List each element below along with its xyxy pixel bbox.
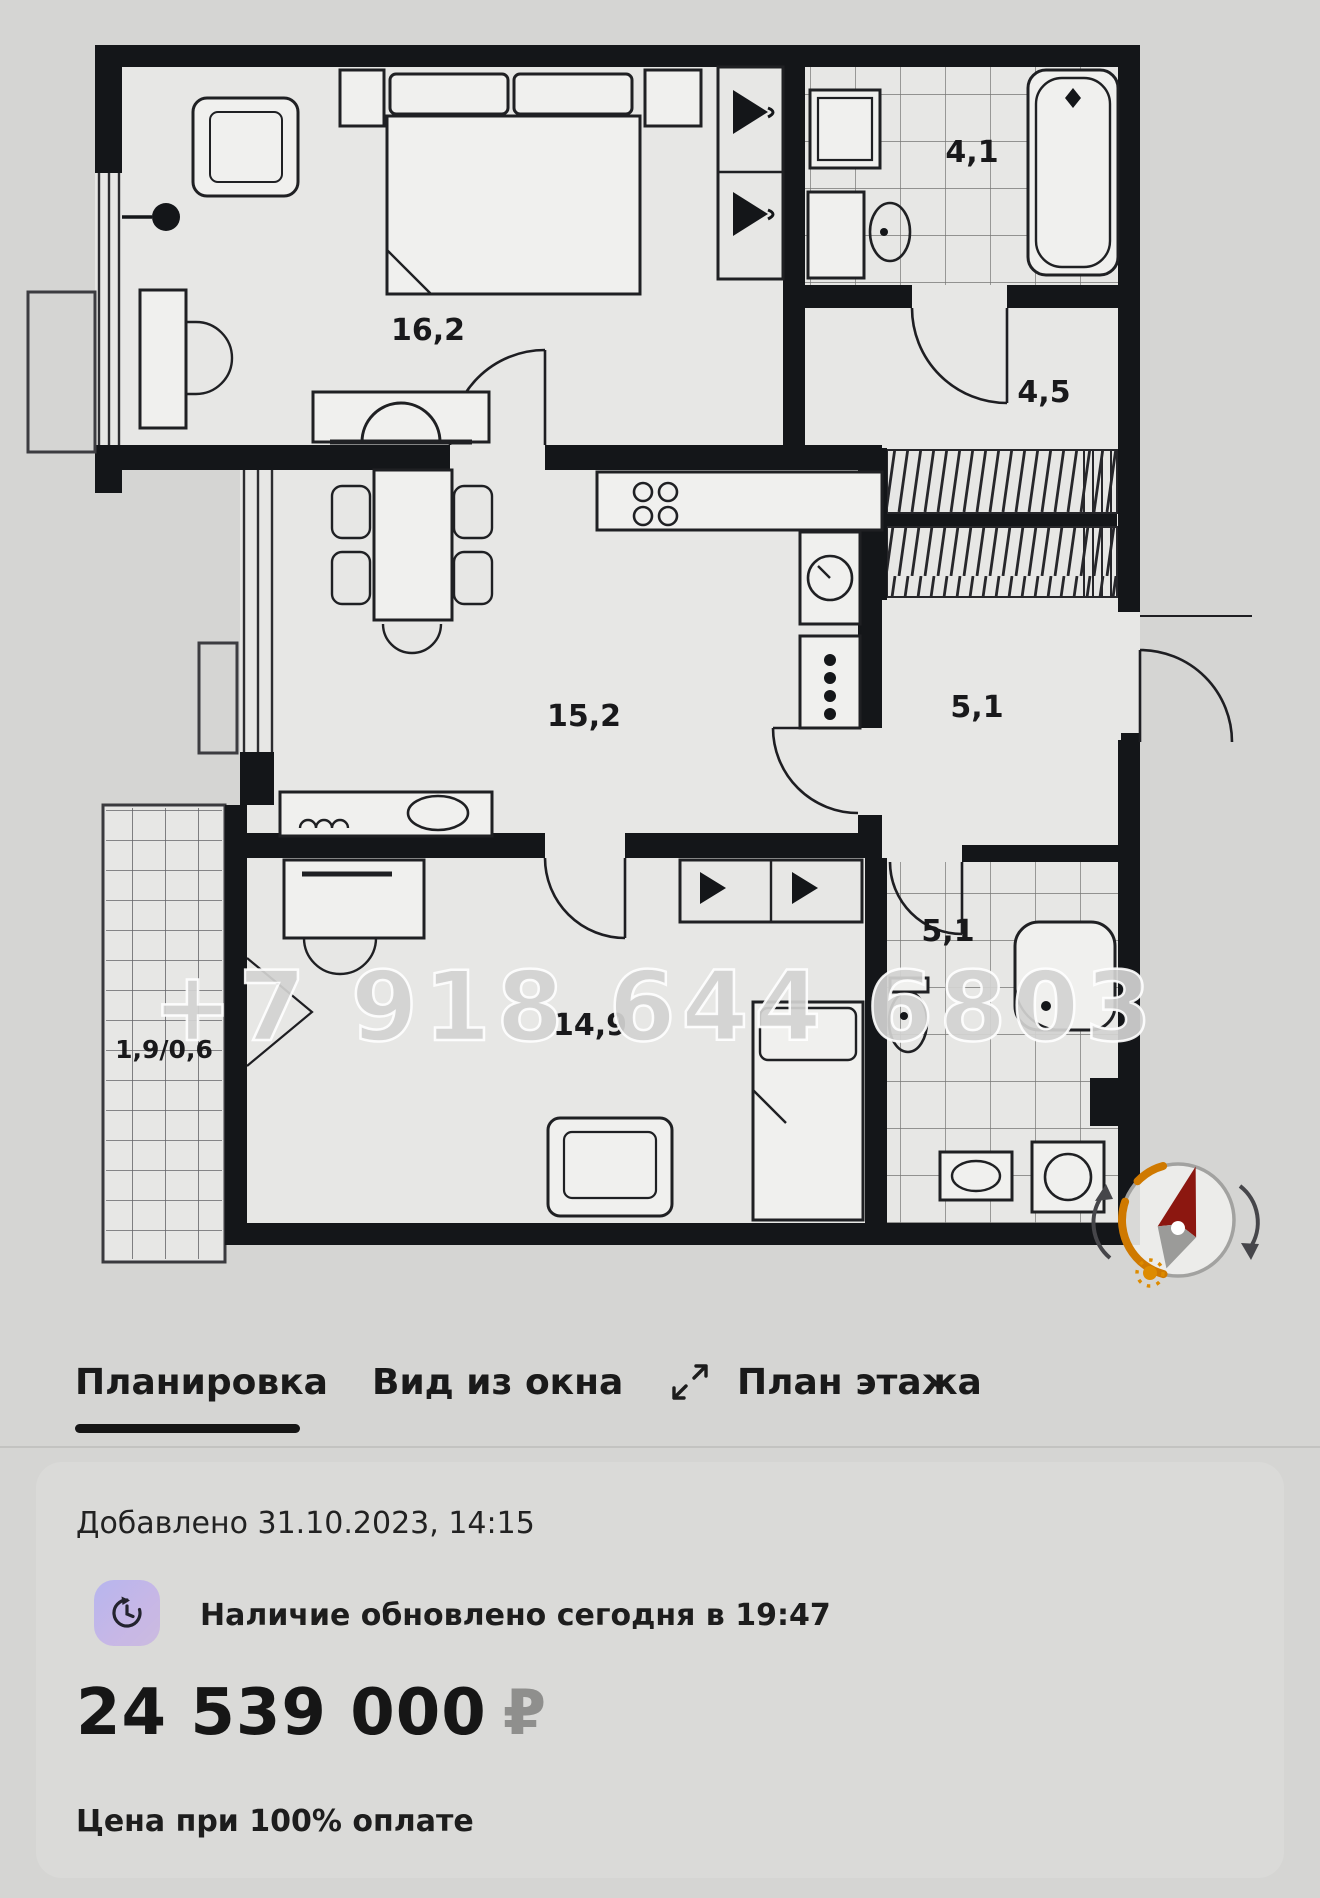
availability-clock-icon (94, 1580, 160, 1646)
tab-layout[interactable]: Планировка (75, 1362, 328, 1403)
added-date-text: Добавлено 31.10.2023, 14:15 (76, 1506, 535, 1541)
room-label-bathroom-top: 4,1 (945, 135, 998, 170)
availability-text: Наличие обновлено сегодня в 19:47 (200, 1598, 831, 1633)
tab-floor-plan[interactable]: План этажа (737, 1362, 982, 1403)
price-row: 24 539 000₽ (76, 1676, 546, 1750)
tab-window-view[interactable]: Вид из окна (372, 1362, 623, 1403)
exterior-ledge (28, 292, 95, 452)
media-tabs: Планировка Вид из окна План этажа (0, 1352, 1320, 1448)
currency-symbol: ₽ (503, 1676, 546, 1749)
room-label-bedroom-top: 16,2 (391, 313, 465, 348)
facade-unit (199, 643, 237, 753)
room-label-hallway: 4,5 (1017, 375, 1070, 410)
price-note: Цена при 100% оплате (76, 1804, 474, 1839)
phone-watermark: +7 918 644 6803 (152, 951, 1157, 1063)
expand-icon[interactable] (668, 1360, 712, 1404)
offer-info-card: Добавлено 31.10.2023, 14:15 Наличие обно… (36, 1462, 1284, 1878)
floor-plan-image: 16,2 4,1 4,5 15,2 5,1 14,9 5,1 1,9/0,6 +… (0, 0, 1320, 1340)
room-label-kitchen: 15,2 (547, 699, 621, 734)
room-label-corridor: 5,1 (950, 690, 1003, 725)
price-value: 24 539 000 (76, 1676, 487, 1750)
tabs-divider (0, 1446, 1320, 1448)
room-label-bathroom-bottom: 5,1 (921, 914, 974, 949)
active-tab-underline (75, 1424, 300, 1433)
